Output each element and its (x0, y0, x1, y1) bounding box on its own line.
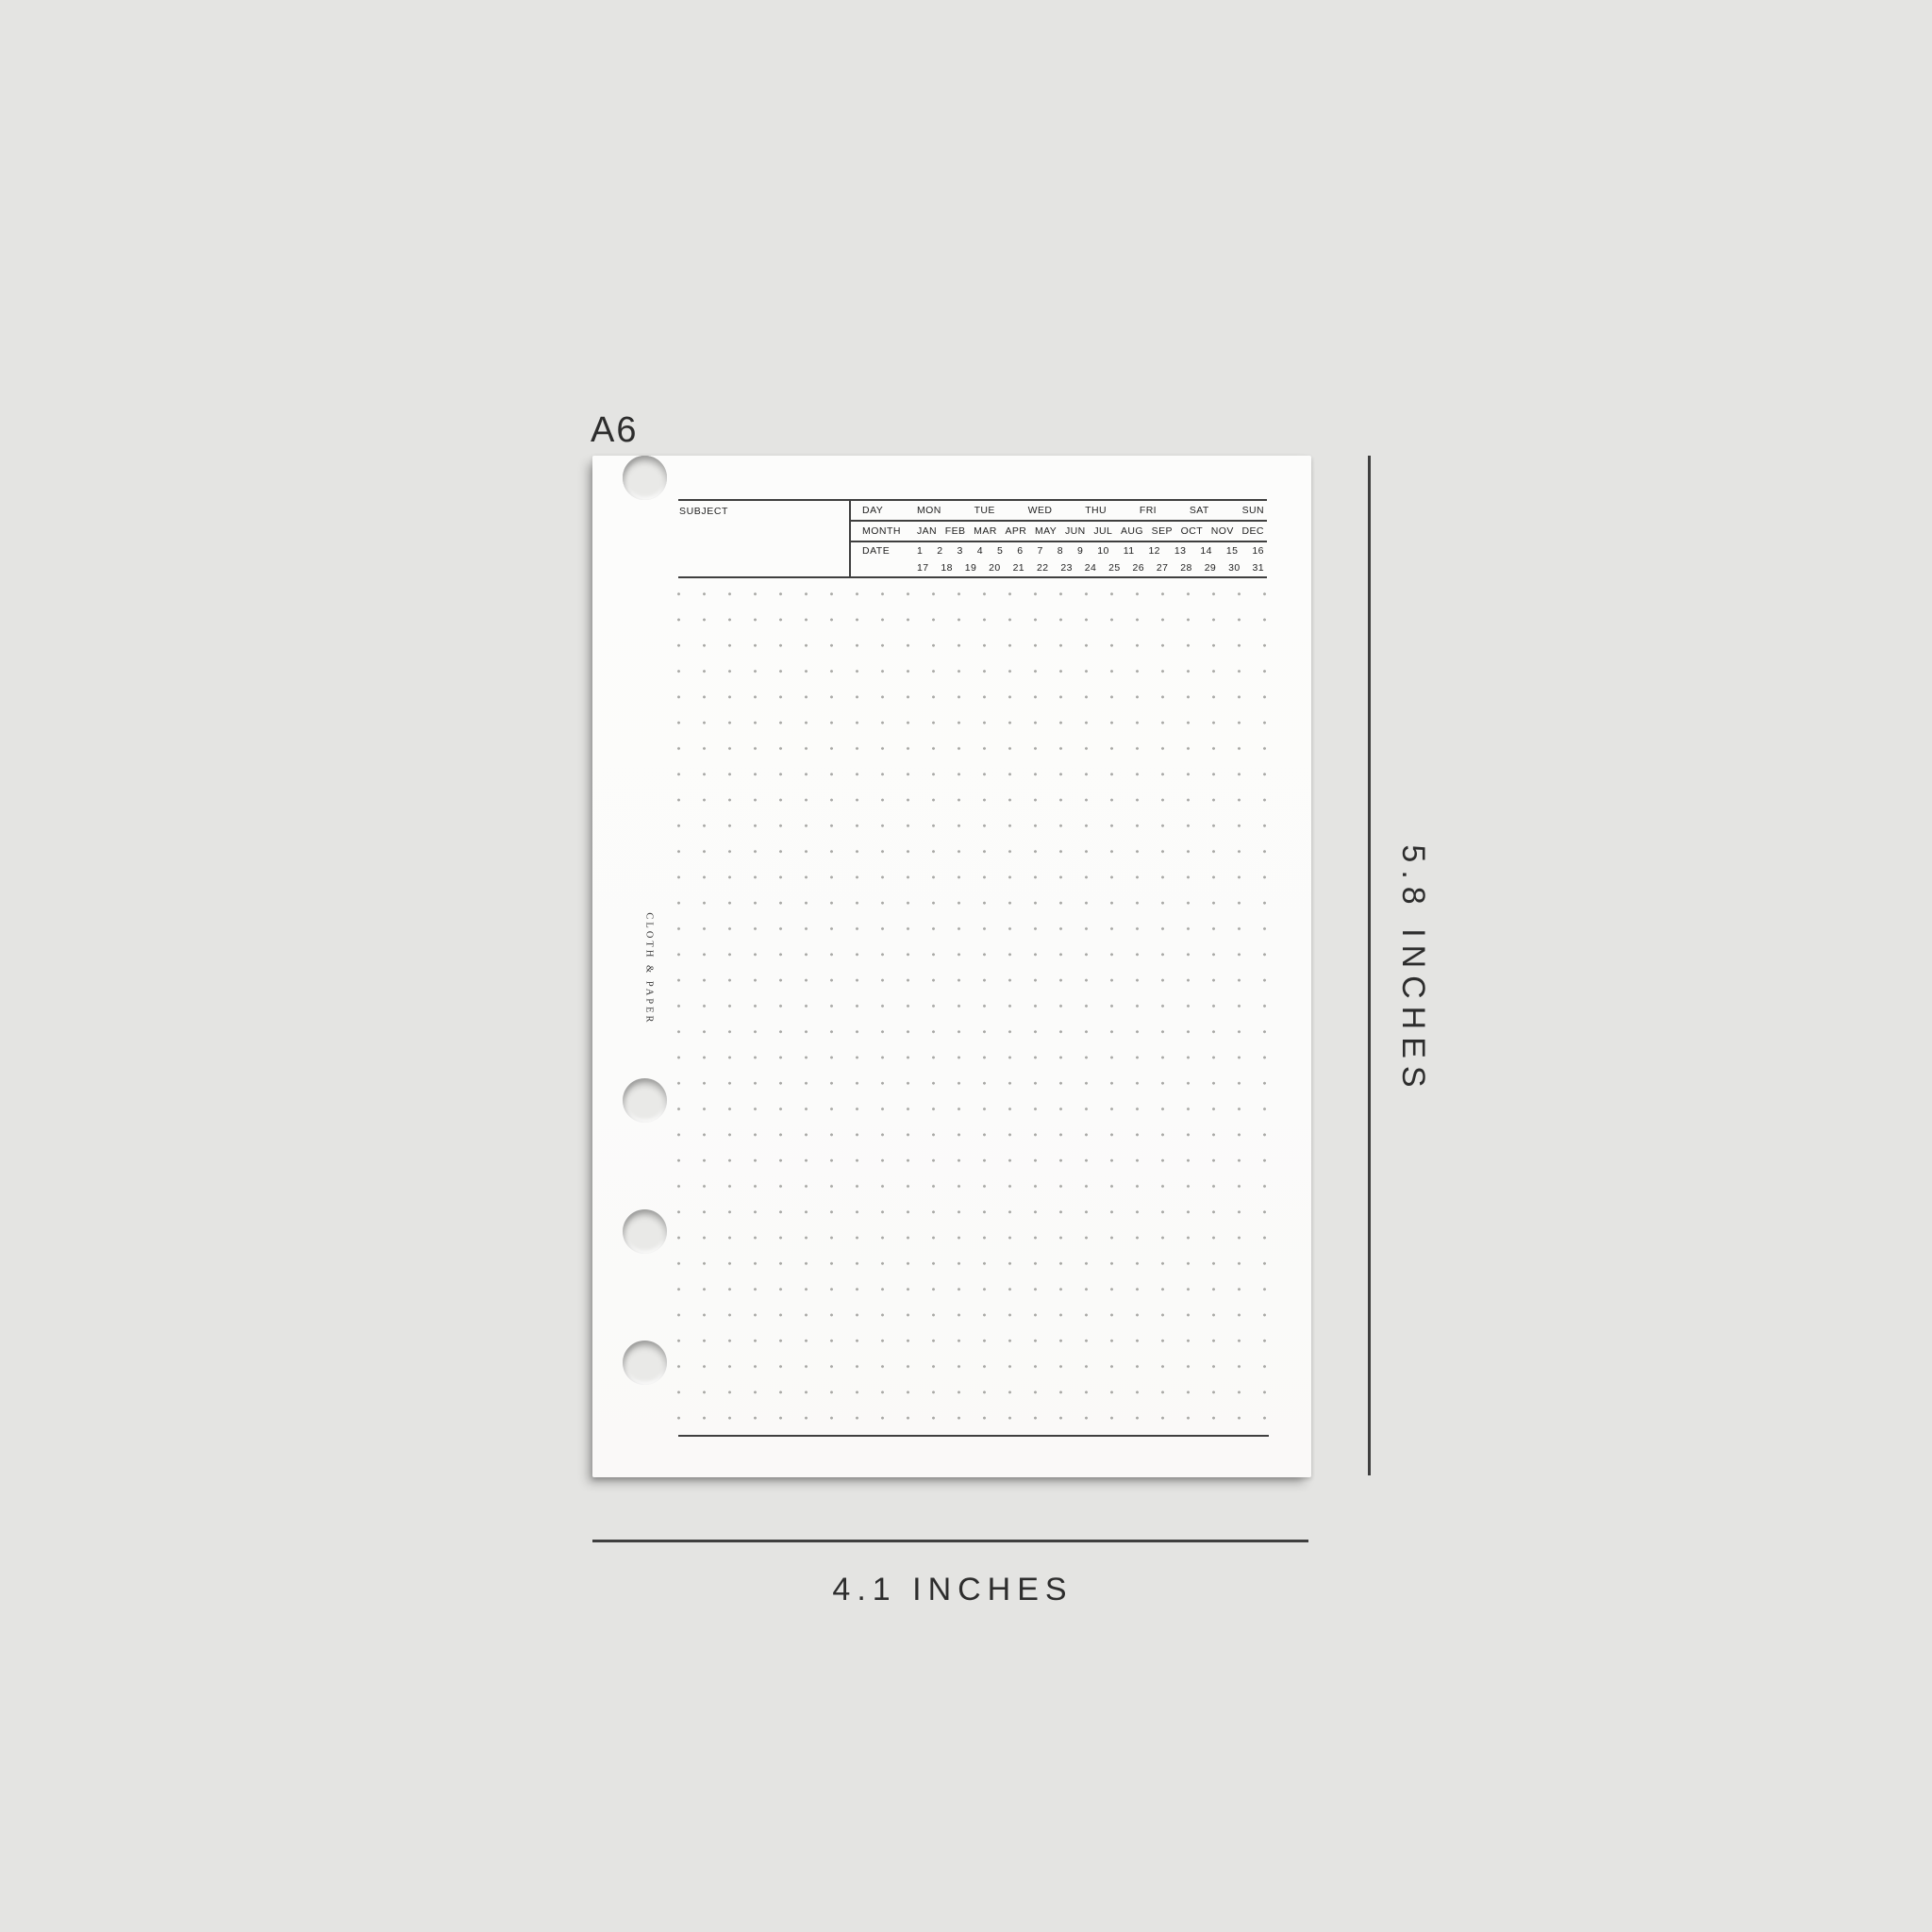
date-number: 6 (1017, 542, 1023, 559)
date-number: 21 (1013, 559, 1024, 576)
date-number: 7 (1038, 542, 1043, 559)
date-number: 24 (1085, 559, 1096, 576)
month-name: JUL (1093, 525, 1112, 537)
subject-field: SUBJECT (678, 501, 849, 576)
day-name: WED (1028, 505, 1053, 516)
day-row-label: DAY (851, 505, 917, 516)
month-name: MAR (974, 525, 997, 537)
date-number: 22 (1037, 559, 1048, 576)
month-name: NOV (1211, 525, 1234, 537)
date-number: 30 (1228, 559, 1240, 576)
punch-hole (623, 1078, 667, 1123)
month-name: MAY (1035, 525, 1057, 537)
date-number: 26 (1133, 559, 1144, 576)
month-row-label: MONTH (851, 525, 917, 537)
date-row: DATE 12345678910111213141516 17181920212… (851, 541, 1267, 576)
date-number: 15 (1226, 542, 1238, 559)
day-row: DAY MONTUEWEDTHUFRISATSUN (851, 501, 1267, 520)
date-numbers-17-31: 171819202122232425262728293031 (917, 559, 1267, 576)
height-dimension-line (1368, 456, 1371, 1475)
day-name: THU (1085, 505, 1107, 516)
date-number: 13 (1174, 542, 1186, 559)
date-number: 4 (977, 542, 983, 559)
month-name: FEB (945, 525, 966, 537)
calendar-header-table: SUBJECT DAY MONTUEWEDTHUFRISATSUN MONTH … (678, 499, 1267, 578)
planner-page: SUBJECT DAY MONTUEWEDTHUFRISATSUN MONTH … (592, 456, 1311, 1477)
height-dimension-label: 5.8 INCHES (1397, 844, 1429, 1094)
dot-grid (666, 581, 1278, 1431)
subject-label: SUBJECT (679, 506, 728, 517)
punch-hole (623, 1341, 667, 1385)
date-number: 10 (1097, 542, 1108, 559)
date-number: 2 (937, 542, 942, 559)
month-name: JUN (1065, 525, 1086, 537)
month-name: APR (1005, 525, 1026, 537)
mockup-canvas: A6 SUBJECT DAY MONTUEWEDTHUFRISATSUN MON… (0, 0, 1932, 1932)
month-name: AUG (1121, 525, 1143, 537)
date-number: 23 (1060, 559, 1072, 576)
calendar-tracker: DAY MONTUEWEDTHUFRISATSUN MONTH JANFEBMA… (849, 501, 1267, 576)
date-number: 28 (1180, 559, 1191, 576)
day-name: SAT (1190, 505, 1209, 516)
month-name: JAN (917, 525, 937, 537)
date-number: 25 (1108, 559, 1120, 576)
date-lines: 12345678910111213141516 1718192021222324… (917, 542, 1267, 576)
date-numbers-1-16: 12345678910111213141516 (917, 542, 1267, 559)
punch-hole (623, 456, 667, 500)
page-size-label: A6 (591, 412, 638, 448)
date-number: 1 (917, 542, 923, 559)
month-name: OCT (1181, 525, 1203, 537)
date-number: 17 (917, 559, 928, 576)
date-number: 16 (1252, 542, 1263, 559)
month-name: SEP (1152, 525, 1173, 537)
width-dimension-line (592, 1540, 1308, 1542)
date-number: 20 (989, 559, 1000, 576)
width-dimension-label: 4.1 INCHES (832, 1574, 1073, 1606)
punch-hole (623, 1209, 667, 1254)
day-name: TUE (974, 505, 995, 516)
date-number: 8 (1058, 542, 1063, 559)
day-name: MON (917, 505, 941, 516)
date-number: 31 (1252, 559, 1263, 576)
day-name: SUN (1242, 505, 1264, 516)
month-name: DEC (1241, 525, 1263, 537)
date-row-label: DATE (851, 542, 917, 559)
date-number: 5 (997, 542, 1003, 559)
date-number: 19 (965, 559, 976, 576)
month-row: MONTH JANFEBMARAPRMAYJUNJULAUGSEPOCTNOVD… (851, 520, 1267, 541)
date-number: 11 (1124, 542, 1135, 559)
day-names: MONTUEWEDTHUFRISATSUN (917, 505, 1267, 516)
date-number: 9 (1077, 542, 1083, 559)
date-number: 29 (1205, 559, 1216, 576)
brand-text: CLOTH & PAPER (644, 912, 655, 1024)
date-number: 12 (1148, 542, 1159, 559)
date-number: 3 (958, 542, 963, 559)
date-number: 14 (1200, 542, 1211, 559)
date-number: 18 (941, 559, 952, 576)
date-number: 27 (1157, 559, 1168, 576)
month-names: JANFEBMARAPRMAYJUNJULAUGSEPOCTNOVDEC (917, 525, 1267, 537)
footer-rule (678, 1435, 1269, 1437)
day-name: FRI (1140, 505, 1157, 516)
